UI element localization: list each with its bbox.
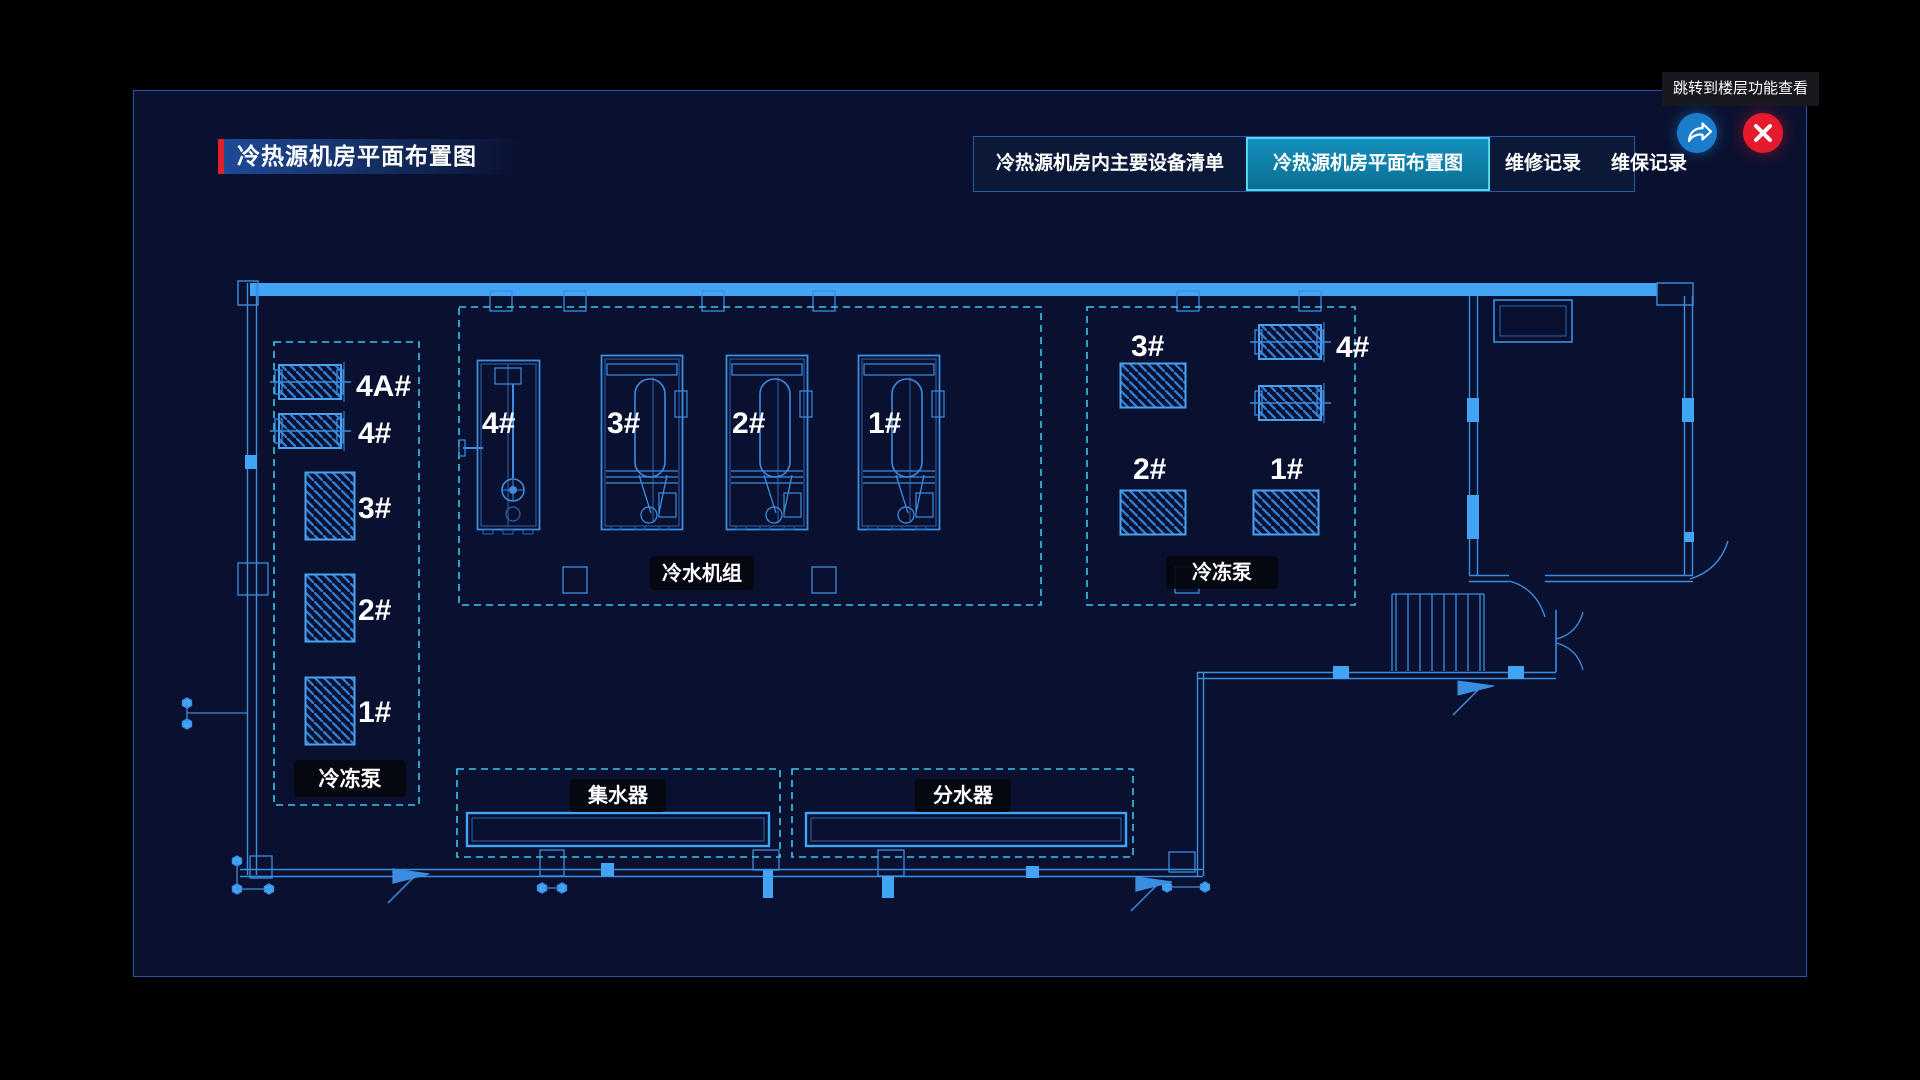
unit-label: 2#	[1133, 453, 1167, 486]
close-button[interactable]	[1743, 113, 1783, 153]
tab-repair-records[interactable]: 维修记录	[1490, 137, 1596, 191]
share-arrow-icon	[1677, 113, 1717, 153]
left-pump-zone: 4A# 4# 3# 2# 1# 冷冻泵	[270, 362, 411, 797]
unit-label: 1#	[868, 407, 902, 440]
chiller-zone: 4# 3# 2# 1# 冷水机组	[459, 356, 944, 591]
zone-label: 冷水机组	[662, 561, 742, 585]
stairs	[1392, 594, 1484, 671]
top-wall	[250, 283, 1657, 296]
zone-label: 冷冻泵	[319, 767, 382, 791]
zone-label: 分水器	[933, 784, 994, 807]
tab-bar: 冷热源机房内主要设备清单 冷热源机房平面布置图 维修记录 维保记录	[973, 136, 1635, 192]
unit-label: 4A#	[356, 370, 411, 403]
bottom-wall	[240, 870, 1203, 877]
exterior-door-arc	[1690, 541, 1728, 579]
unit-label: 1#	[1270, 453, 1304, 486]
right-pump-zone: 3# 4# 2# 1# 冷冻泵	[1121, 322, 1370, 589]
unit-label: 4#	[358, 417, 392, 450]
zone-label: 冷冻泵	[1192, 560, 1252, 584]
jump-to-floor-button[interactable]	[1677, 113, 1717, 153]
unit-label: 3#	[607, 407, 641, 440]
unit-label: 2#	[358, 594, 392, 627]
jump-tooltip: 跳转到楼层功能查看	[1662, 72, 1819, 106]
unit-label: 4#	[1336, 331, 1370, 364]
unit-label: 3#	[1131, 330, 1165, 363]
page-title: 冷热源机房平面布置图	[224, 139, 537, 174]
tab-equipment-list[interactable]: 冷热源机房内主要设备清单	[974, 137, 1246, 191]
close-x-icon	[1743, 113, 1783, 153]
left-wall	[248, 283, 257, 875]
unit-label: 4#	[482, 407, 516, 440]
dashboard-stage: 4A# 4# 3# 2# 1# 冷冻泵 4# 3# 2# 1# 冷水机组	[0, 0, 1920, 1080]
distributor-zone: 分水器	[806, 779, 1126, 846]
unit-label: 2#	[732, 407, 766, 440]
page-title-text: 冷热源机房平面布置图	[237, 143, 477, 169]
door-arcs	[1509, 541, 1728, 672]
stair-direction-arrow	[1453, 681, 1494, 715]
unit-label: 3#	[358, 492, 392, 525]
tab-floor-layout[interactable]: 冷热源机房平面布置图	[1246, 137, 1490, 191]
collector-zone: 集水器	[467, 779, 769, 846]
column-markers	[490, 291, 1321, 593]
zone-label: 集水器	[587, 783, 649, 807]
stair-room	[1392, 296, 1728, 715]
unit-label: 1#	[358, 696, 392, 729]
